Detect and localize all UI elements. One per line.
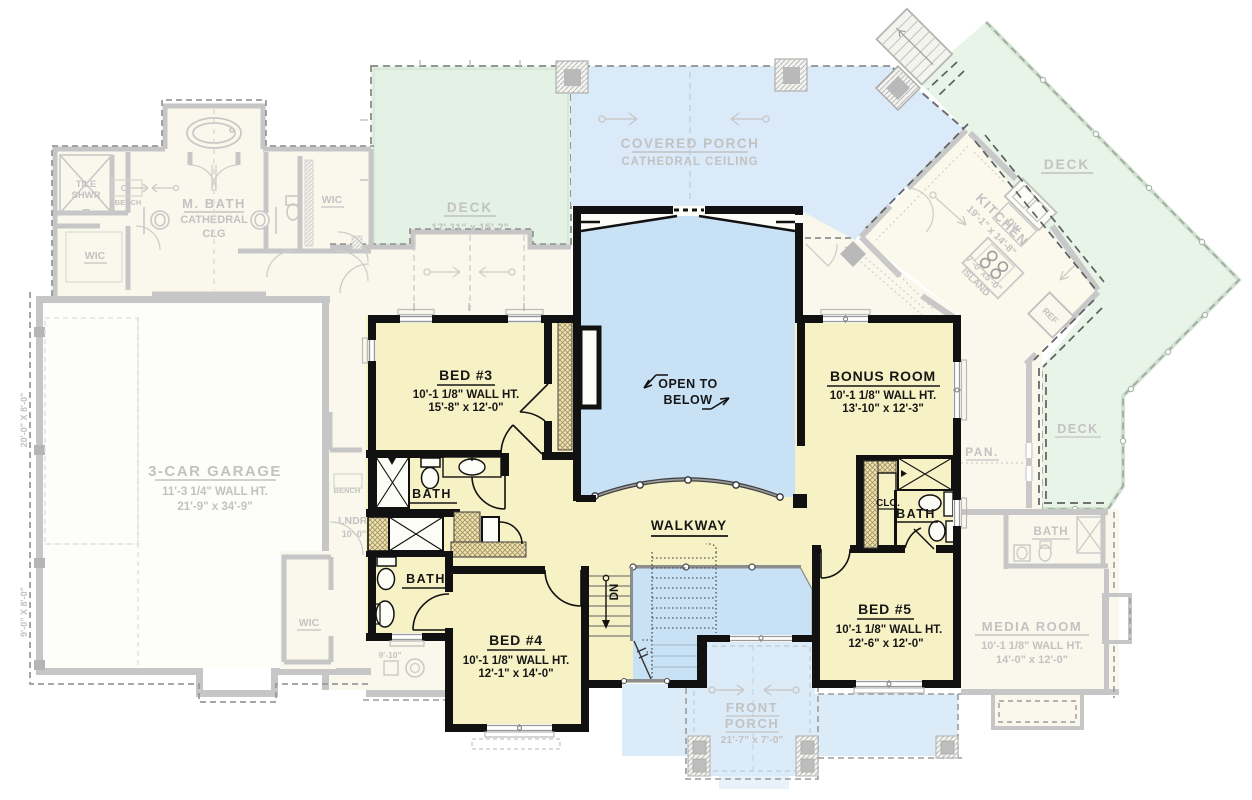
svg-text:WIC: WIC	[322, 194, 343, 206]
svg-text:10'-0": 10'-0"	[342, 529, 366, 539]
svg-text:DECK: DECK	[447, 200, 493, 215]
svg-text:CATHEDRAL CEILING: CATHEDRAL CEILING	[621, 156, 758, 168]
svg-text:11'-3 1/4" WALL HT.: 11'-3 1/4" WALL HT.	[162, 486, 268, 498]
svg-text:9'-10": 9'-10"	[378, 650, 401, 660]
svg-text:PAN.: PAN.	[965, 445, 999, 459]
svg-text:COVERED PORCH: COVERED PORCH	[621, 136, 760, 151]
svg-text:10'-1 1/8" WALL HT.: 10'-1 1/8" WALL HT.	[463, 655, 569, 667]
svg-text:21'-9" x 34'-9": 21'-9" x 34'-9"	[177, 501, 252, 513]
svg-text:9'-0" X 8'-0": 9'-0" X 8'-0"	[19, 587, 29, 637]
svg-text:20'-0" X 8'-0": 20'-0" X 8'-0"	[19, 393, 29, 448]
svg-text:BENCH: BENCH	[334, 486, 361, 495]
svg-text:12'-1" x 14'-0": 12'-1" x 14'-0"	[478, 668, 553, 680]
svg-text:BELOW: BELOW	[663, 393, 712, 407]
svg-text:BED #4: BED #4	[489, 632, 543, 648]
svg-text:15'-8" x 12'-0": 15'-8" x 12'-0"	[428, 402, 503, 414]
svg-text:DECK: DECK	[1044, 157, 1090, 172]
svg-text:BATH: BATH	[896, 507, 936, 521]
svg-text:10'-1 1/8" WALL HT.: 10'-1 1/8" WALL HT.	[836, 624, 942, 636]
svg-text:BATH: BATH	[1033, 526, 1068, 538]
svg-text:13'-10" x 12'-3": 13'-10" x 12'-3"	[842, 403, 924, 415]
svg-text:17'-11" x 15'-2": 17'-11" x 15'-2"	[431, 222, 508, 234]
svg-text:3-CAR GARAGE: 3-CAR GARAGE	[148, 463, 282, 480]
svg-text:10'-1 1/8" WALL HT.: 10'-1 1/8" WALL HT.	[830, 390, 936, 402]
svg-text:BATH: BATH	[406, 572, 446, 586]
svg-text:MEDIA ROOM: MEDIA ROOM	[982, 619, 1082, 634]
svg-text:WALKWAY: WALKWAY	[651, 518, 727, 533]
svg-text:WIC: WIC	[85, 250, 106, 262]
svg-text:BONUS ROOM: BONUS ROOM	[830, 368, 936, 384]
svg-text:10'-1 1/8" WALL HT.: 10'-1 1/8" WALL HT.	[981, 640, 1083, 652]
svg-text:DN: DN	[609, 584, 621, 601]
svg-text:BATH: BATH	[412, 487, 452, 501]
svg-text:21'-7" x 7'-0": 21'-7" x 7'-0"	[721, 734, 784, 746]
svg-text:SHWR: SHWR	[71, 190, 100, 201]
svg-text:BENCH: BENCH	[115, 198, 142, 207]
svg-text:BED #3: BED #3	[439, 367, 493, 383]
svg-text:BED #5: BED #5	[858, 601, 912, 617]
svg-text:14'-0" x 12'-0": 14'-0" x 12'-0"	[996, 654, 1068, 666]
svg-text:10'-1 1/8" WALL HT.: 10'-1 1/8" WALL HT.	[413, 389, 519, 401]
svg-text:DECK: DECK	[1057, 422, 1098, 436]
svg-text:TILE: TILE	[76, 179, 97, 190]
svg-text:PORCH: PORCH	[725, 716, 779, 731]
svg-text:FRONT: FRONT	[726, 700, 778, 715]
svg-text:12'-6" x 12'-0": 12'-6" x 12'-0"	[848, 638, 923, 650]
svg-text:OPEN TO: OPEN TO	[658, 377, 718, 391]
svg-text:WIC: WIC	[299, 617, 320, 629]
